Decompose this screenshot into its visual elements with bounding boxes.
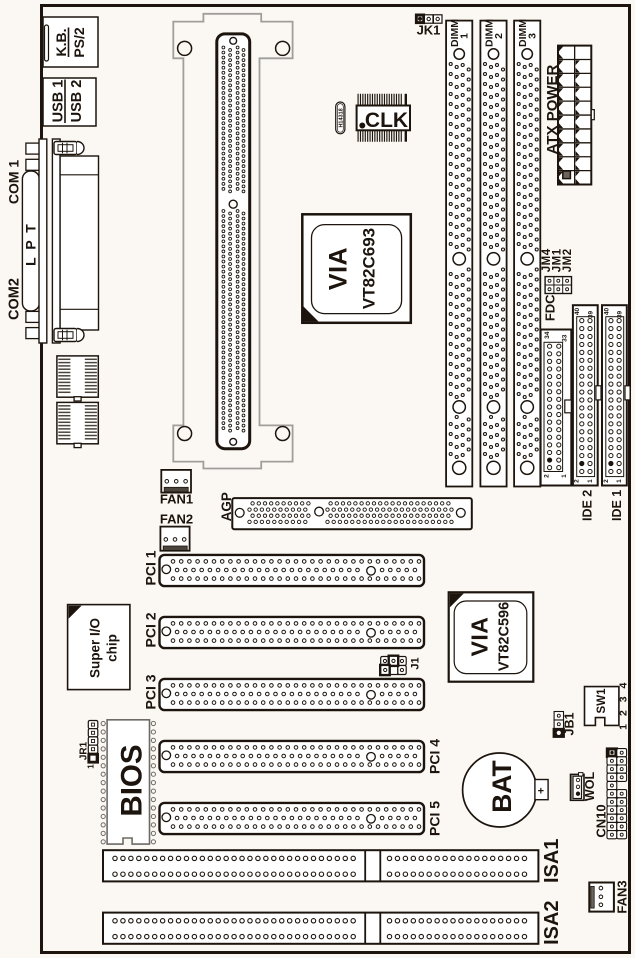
svg-text:DIMM: DIMM: [483, 19, 495, 47]
svg-text:USB 2: USB 2: [69, 80, 85, 123]
svg-text:2: 2: [603, 479, 610, 483]
svg-text:39: 39: [587, 311, 594, 319]
svg-text:IDE 2: IDE 2: [581, 490, 595, 521]
svg-text:L P T: L P T: [23, 222, 39, 266]
svg-text:34: 34: [544, 331, 551, 339]
svg-text:DIMM: DIMM: [517, 19, 529, 47]
svg-text:BAT: BAT: [487, 760, 517, 813]
svg-text:ISA2: ISA2: [541, 900, 563, 944]
svg-text:FDC: FDC: [543, 294, 558, 321]
svg-text:1 2 3 4: 1 2 3 4: [618, 680, 630, 730]
svg-text:COM2: COM2: [7, 278, 23, 320]
svg-text:H14318: H14318: [338, 108, 344, 127]
svg-text:K.B.: K.B.: [53, 29, 69, 57]
svg-text:33: 33: [562, 334, 569, 342]
svg-text:2: 2: [493, 33, 505, 39]
svg-text:39: 39: [617, 311, 624, 319]
svg-text:BIOS: BIOS: [116, 744, 149, 816]
svg-text:chip: chip: [105, 634, 120, 662]
svg-text:VT82C596: VT82C596: [497, 602, 513, 671]
svg-text:1: 1: [87, 764, 96, 769]
svg-text:VIA: VIA: [325, 247, 353, 290]
svg-text:CLK: CLK: [365, 109, 408, 132]
svg-text:PCI 2: PCI 2: [143, 612, 159, 647]
svg-text:2: 2: [574, 479, 581, 483]
svg-text:ISA1: ISA1: [541, 839, 563, 883]
svg-text:FAN3: FAN3: [614, 880, 629, 913]
svg-text:PCI 1: PCI 1: [143, 550, 159, 585]
svg-text:WOL: WOL: [583, 772, 597, 802]
svg-text:VT82C693: VT82C693: [360, 228, 379, 309]
svg-text:PCI 3: PCI 3: [143, 674, 159, 709]
svg-text:JB1: JB1: [563, 712, 577, 735]
svg-text:CN10: CN10: [594, 804, 609, 837]
svg-text:DIMM: DIMM: [449, 19, 461, 47]
svg-text:VIA: VIA: [467, 617, 493, 657]
svg-text:+: +: [538, 785, 544, 797]
svg-text:JK1: JK1: [417, 22, 441, 37]
svg-text:PCI 4: PCI 4: [427, 739, 443, 774]
svg-text:Super I/O: Super I/O: [88, 618, 103, 678]
svg-text:1: 1: [587, 479, 594, 483]
svg-text:40: 40: [603, 308, 610, 316]
svg-text:SW1: SW1: [596, 688, 608, 714]
svg-text:1: 1: [616, 479, 623, 483]
svg-text:J1: J1: [410, 657, 422, 669]
svg-text:JM2: JM2: [562, 248, 574, 272]
svg-text:FAN2: FAN2: [160, 511, 193, 526]
svg-text:IDE 1: IDE 1: [610, 490, 624, 521]
svg-text:JR1: JR1: [79, 741, 90, 760]
svg-text:3: 3: [527, 33, 539, 39]
svg-text:1: 1: [459, 33, 471, 39]
svg-text:1: 1: [561, 474, 568, 478]
svg-text:2: 2: [543, 474, 550, 478]
svg-text:USB 1: USB 1: [51, 80, 67, 123]
svg-text:PCI 5: PCI 5: [427, 801, 443, 836]
svg-text:PS/2: PS/2: [71, 27, 87, 58]
svg-text:COM 1: COM 1: [6, 160, 22, 205]
svg-text:FAN1: FAN1: [160, 492, 193, 507]
svg-text:40: 40: [574, 308, 581, 316]
